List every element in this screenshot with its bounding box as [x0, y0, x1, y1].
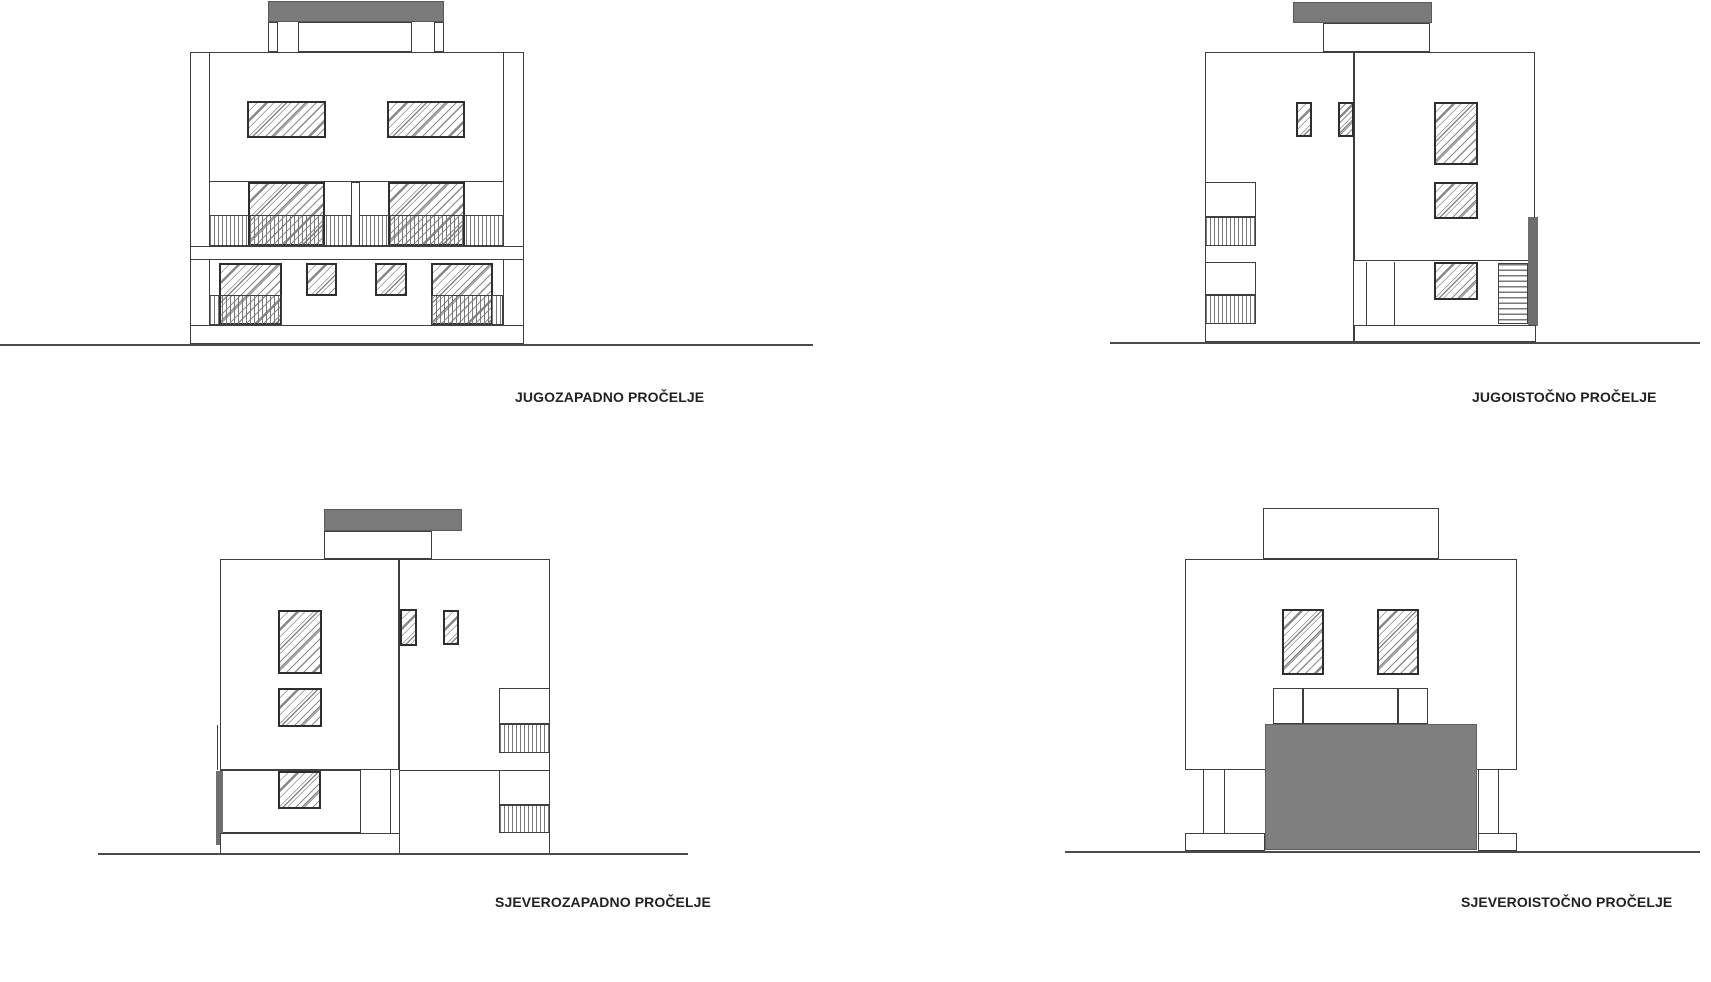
- wall-edge-shadow: [1528, 217, 1538, 326]
- ground-line: [1065, 851, 1700, 853]
- small-window-hatched: [1296, 102, 1312, 137]
- roof-slab: [324, 509, 462, 531]
- plinth: [1354, 325, 1536, 342]
- roof-railing-post: [434, 22, 444, 52]
- window-hatched: [278, 688, 322, 727]
- ground-line: [98, 853, 688, 855]
- window-hatched: [278, 771, 321, 809]
- side-balcony-railing: [499, 805, 550, 833]
- window-hatched: [1377, 609, 1419, 675]
- side-balcony-opening: [1205, 182, 1256, 217]
- window-hatched: [1434, 182, 1478, 219]
- window-hatched: [247, 101, 326, 138]
- pilotis-column: [1478, 770, 1479, 833]
- ground-railing: [209, 295, 282, 325]
- plinth: [1185, 833, 1265, 851]
- garage-block: [1265, 724, 1477, 850]
- pilotis-column: [1203, 770, 1204, 833]
- terrace-parapet: [1398, 688, 1428, 724]
- elevation-sheet: JUGOZAPADNO PROČELJE JUGOISTOČNO PROČELJ…: [0, 0, 1711, 982]
- window-hatched: [1434, 262, 1478, 300]
- small-window-hatched: [400, 609, 417, 646]
- side-balcony-opening: [499, 770, 550, 805]
- wall-inner-line: [503, 52, 504, 325]
- small-window-hatched: [443, 610, 459, 645]
- balcony-divider-pier: [351, 182, 360, 246]
- ground-floor-column: [1366, 262, 1367, 325]
- plinth-line: [190, 325, 524, 326]
- pilotis-column: [1498, 770, 1499, 833]
- ground-railing: [431, 295, 503, 325]
- window-hatched: [1434, 102, 1478, 165]
- facade-label-northeast: SJEVEROISTOČNO PROČELJE: [1461, 894, 1672, 910]
- roof-slab: [268, 1, 444, 22]
- plinth: [1478, 833, 1517, 851]
- roof-railing-post: [268, 22, 278, 52]
- side-balcony-railing: [499, 724, 550, 753]
- wall-inner-line: [209, 52, 210, 325]
- stair-louver: [1498, 263, 1528, 324]
- ground-floor-column: [390, 770, 391, 834]
- window-hatched: [1282, 609, 1324, 675]
- terrace-parapet: [1273, 688, 1303, 724]
- balcony-slab-band: [190, 246, 524, 260]
- roof-slab: [1293, 2, 1432, 23]
- roof-penthouse: [324, 531, 432, 559]
- ground-line: [0, 344, 813, 346]
- roof-penthouse: [298, 22, 412, 52]
- facade-label-northwest: SJEVEROZAPADNO PROČELJE: [495, 894, 711, 910]
- small-window-hatched: [1338, 102, 1354, 137]
- wall-edge-line: [217, 725, 218, 770]
- window-hatched: [387, 101, 465, 138]
- roof-penthouse: [1323, 23, 1430, 52]
- pilotis-column: [1224, 770, 1225, 833]
- facade-label-southeast: JUGOISTOČNO PROČELJE: [1472, 389, 1657, 405]
- side-balcony-opening: [499, 688, 550, 724]
- small-window-hatched: [306, 263, 337, 296]
- side-balcony-opening: [1205, 262, 1256, 295]
- roof-penthouse: [1263, 508, 1439, 559]
- side-balcony-railing: [1205, 295, 1256, 324]
- ground-floor-column: [1394, 262, 1395, 325]
- facade-label-southwest: JUGOZAPADNO PROČELJE: [515, 389, 704, 405]
- plinth: [220, 833, 400, 854]
- window-hatched: [278, 610, 322, 674]
- terrace-parapet: [1303, 688, 1398, 724]
- small-window-hatched: [375, 263, 407, 296]
- side-balcony-railing: [1205, 217, 1256, 246]
- ground-line: [1110, 342, 1700, 344]
